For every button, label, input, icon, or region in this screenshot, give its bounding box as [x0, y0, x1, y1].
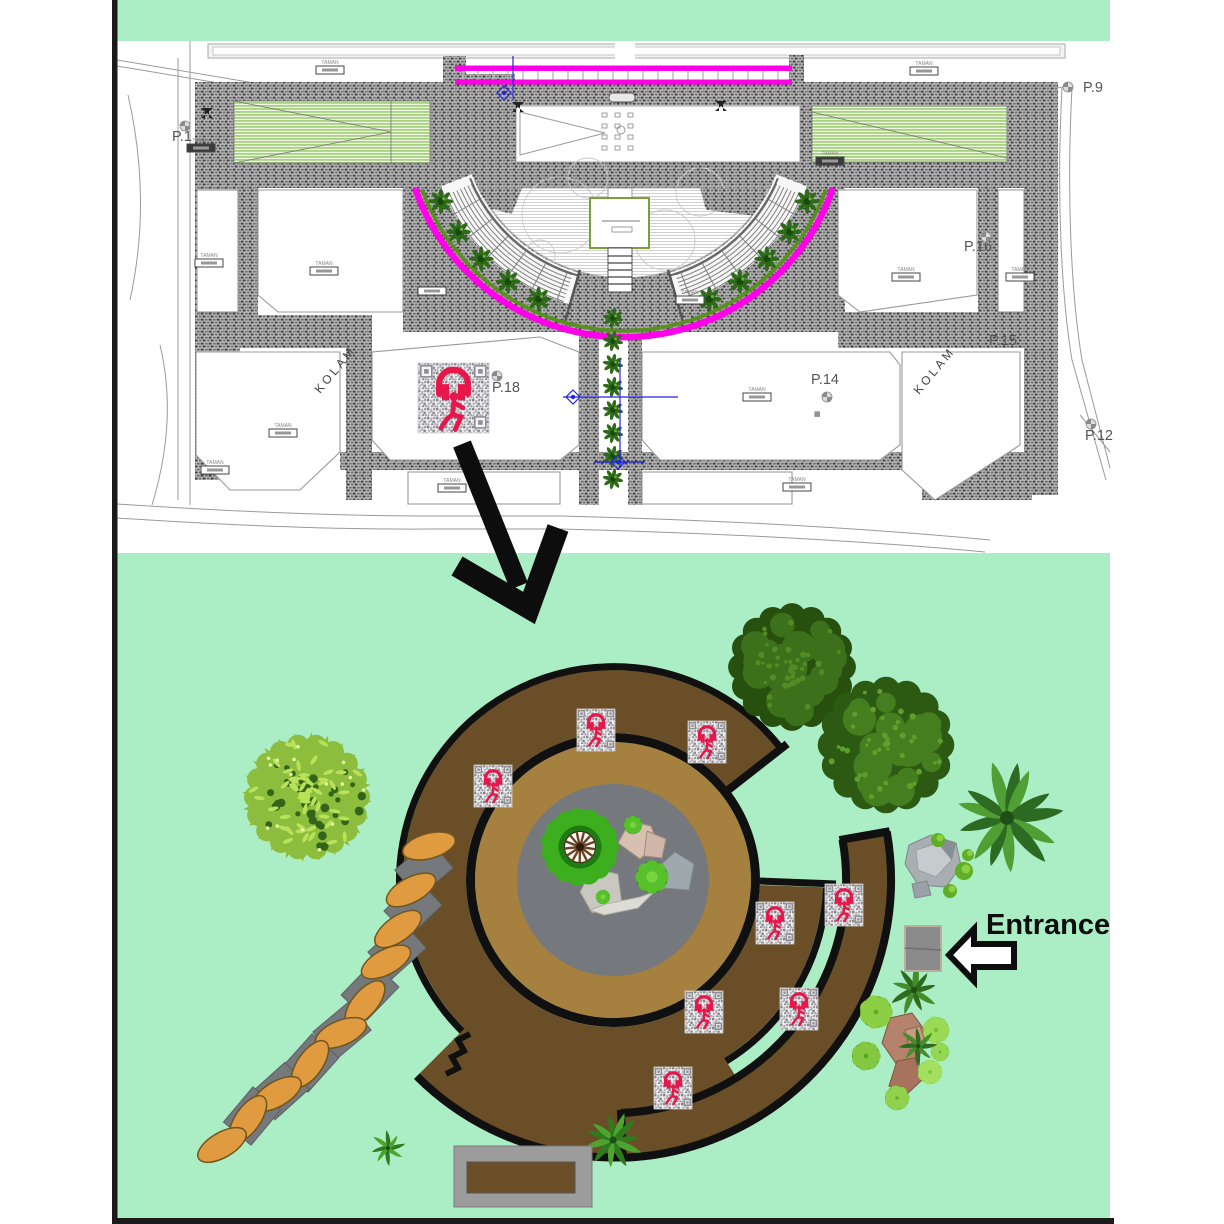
- svg-text:P.14: P.14: [811, 372, 839, 388]
- svg-text:P.18: P.18: [492, 380, 520, 396]
- svg-text:P.15: P.15: [989, 333, 1017, 349]
- svg-text:TAMAN: TAMAN: [1011, 267, 1029, 273]
- svg-text:TAMAN: TAMAN: [915, 61, 933, 67]
- svg-text:TAMAN: TAMAN: [274, 423, 292, 429]
- svg-text:TAMAN: TAMAN: [200, 253, 218, 259]
- svg-text:TAMAN: TAMAN: [897, 267, 915, 273]
- svg-text:▦: ▦: [814, 411, 821, 418]
- svg-text:TAMAN: TAMAN: [681, 290, 699, 296]
- svg-text:TAMAN: TAMAN: [788, 477, 806, 483]
- svg-text:TAMAN: TAMAN: [443, 478, 461, 484]
- svg-text:TAMAN: TAMAN: [321, 60, 339, 66]
- svg-text:TAMAN: TAMAN: [206, 460, 224, 466]
- svg-text:Entrance: Entrance: [986, 909, 1110, 941]
- svg-text:TAMAN: TAMAN: [748, 387, 766, 393]
- svg-text:TAMAN: TAMAN: [192, 138, 210, 144]
- svg-text:TAMAN: TAMAN: [315, 261, 333, 267]
- svg-text:P.1: P.1: [172, 129, 192, 145]
- svg-text:P.12: P.12: [1085, 428, 1113, 444]
- svg-text:TAMAN: TAMAN: [821, 151, 839, 157]
- svg-text:P.9: P.9: [1083, 80, 1103, 96]
- svg-text:TAMAN: TAMAN: [423, 281, 441, 287]
